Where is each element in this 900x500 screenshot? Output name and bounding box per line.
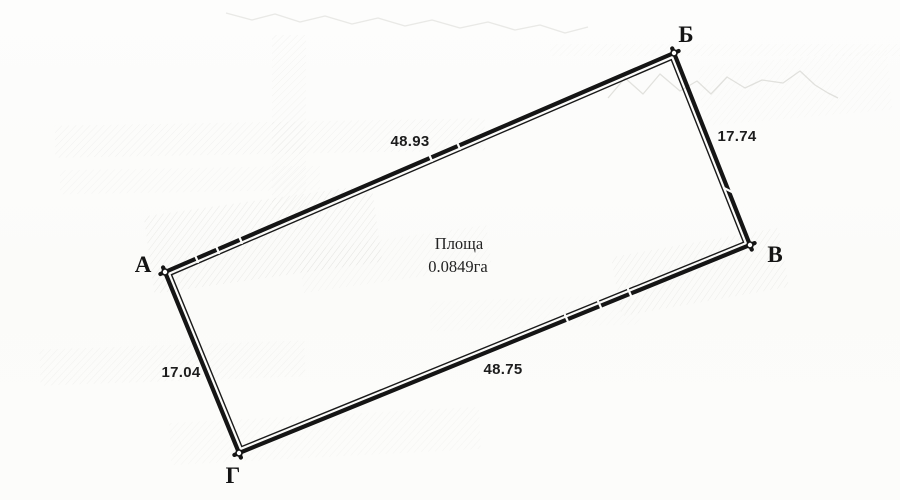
vertex-label-g: Г [226,463,241,488]
side-length-left: 17.04 [161,364,200,381]
vertex-label-b: Б [678,22,693,47]
side-length-right: 17.74 [717,128,756,145]
survey-plan-canvas: А Б В Г 48.93 17.74 48.75 17.04 Площа 0.… [0,0,900,500]
side-length-top: 48.93 [390,133,429,150]
vertex-marker-v [747,242,753,248]
vertex-marker-g [236,450,242,456]
area-value: 0.0849га [428,257,488,276]
bleed-zigzag-top [226,13,588,33]
area-title: Площа [435,234,484,253]
vertex-marker-b [671,50,677,56]
side-length-bottom: 48.75 [483,361,522,378]
vertex-marker-a [162,269,168,275]
scanned-plan-page: А Б В Г 48.93 17.74 48.75 17.04 Площа 0.… [0,0,900,500]
vertex-label-a: А [135,252,152,277]
vertex-label-v: В [767,242,782,267]
